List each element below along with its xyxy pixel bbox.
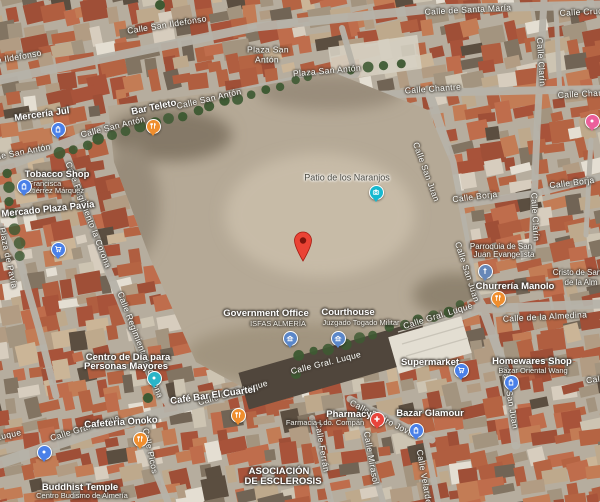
street-label: Calle Velarde: [415, 449, 433, 502]
poi-pin-pharmacy-icon[interactable]: [370, 412, 385, 427]
street-label: Calle Borja: [452, 190, 498, 204]
street-label: Calle San Antón: [80, 115, 146, 140]
street-label: Plaza San: [247, 46, 289, 55]
attraction-label[interactable]: Patio de los Naranjos: [304, 173, 390, 182]
poi-pin-shop-icon[interactable]: [504, 375, 519, 390]
poi-label[interactable]: Centro Budismo de Almería: [36, 492, 128, 500]
street-label: Calle Gral. Luque: [290, 350, 362, 376]
street-label: Calle San Ildefonso: [127, 14, 208, 35]
street-label: Calle San Antón: [0, 142, 51, 163]
red-location-marker[interactable]: [292, 231, 314, 263]
street-label: Calle de la Almedina: [503, 310, 588, 323]
street-label: Calle Gral. Luque: [402, 301, 474, 331]
street-label: Calle Clarín: [529, 192, 540, 241]
street-label: Calle San Juan: [411, 141, 441, 203]
poi-pin-cart-icon[interactable]: [51, 242, 66, 257]
street-label: Calle de la Almedina: [586, 365, 600, 386]
poi-label[interactable]: Courthouse: [321, 308, 374, 318]
poi-pin-dot-icon[interactable]: [585, 114, 600, 129]
poi-label[interactable]: Bar Teleto: [131, 98, 178, 117]
street-label: Calle Gral. Luque: [0, 428, 22, 452]
poi-label[interactable]: Juzgado Togado Militar: [323, 319, 400, 327]
street-label: Calle Chantre: [558, 88, 600, 100]
street-label: Calle Borja: [549, 176, 595, 190]
street-label: Calle Chantre: [404, 83, 461, 96]
street-label: Plaza San Antón: [293, 64, 362, 79]
poi-pin-food-icon[interactable]: [133, 432, 148, 447]
poi-label[interactable]: Juan Evangelista: [474, 251, 535, 259]
poi-pin-cart-icon[interactable]: [454, 363, 469, 378]
street-label: Plaza de Pavía: [0, 227, 19, 290]
street-label: Calle Ferrán: [313, 421, 331, 473]
poi-pin-shop-icon[interactable]: [51, 122, 66, 137]
street-label: Antón: [255, 56, 279, 65]
poi-label[interactable]: Bazar Glamour: [396, 409, 464, 419]
poi-pin-church-icon[interactable]: [478, 264, 493, 279]
poi-label[interactable]: de la Alm: [565, 279, 598, 287]
poi-pin-food-icon[interactable]: [146, 119, 161, 134]
street-label: Calle Cruces: [559, 6, 600, 18]
poi-label[interactable]: Mercería Jul: [14, 106, 70, 124]
poi-pin-dot-icon[interactable]: [37, 445, 52, 460]
poi-pin-shop-icon[interactable]: [409, 423, 424, 438]
poi-pin-gov-icon[interactable]: [283, 331, 298, 346]
street-label: Calle Mirasol: [362, 431, 380, 485]
poi-pin-dot-icon[interactable]: [147, 371, 162, 386]
poi-label[interactable]: Mercado Plaza Pavía: [1, 200, 95, 220]
poi-label[interactable]: Café Bar El Cuartel: [170, 385, 257, 407]
poi-pin-food-icon[interactable]: [231, 408, 246, 423]
map-canvas[interactable]: Calle San IldefonsoCalle San IldefonsoCa…: [0, 0, 600, 502]
poi-label[interactable]: ISFAS ALMERÍA: [250, 320, 306, 328]
poi-label[interactable]: Cristo de San: [553, 269, 600, 277]
poi-pin-shop-icon[interactable]: [17, 179, 32, 194]
street-label: Calle Clarín: [535, 37, 547, 86]
poi-label[interactable]: Farmacia Ldo. Compán: [286, 419, 364, 427]
poi-label[interactable]: DE ESCLEROSIS: [244, 477, 321, 487]
poi-pin-camera-icon[interactable]: [369, 185, 384, 200]
poi-label[interactable]: Supermarket: [401, 358, 459, 368]
street-label: Calle San Antón: [176, 87, 243, 111]
street-label: Calle de Santa María: [424, 3, 511, 16]
poi-label[interactable]: Bazar Oriental Wang: [498, 367, 567, 375]
poi-pin-food-icon[interactable]: [491, 291, 506, 306]
street-label: Calle San Ildefonso: [0, 49, 42, 72]
poi-pin-gov-icon[interactable]: [331, 331, 346, 346]
poi-label[interactable]: Government Office: [223, 309, 309, 319]
